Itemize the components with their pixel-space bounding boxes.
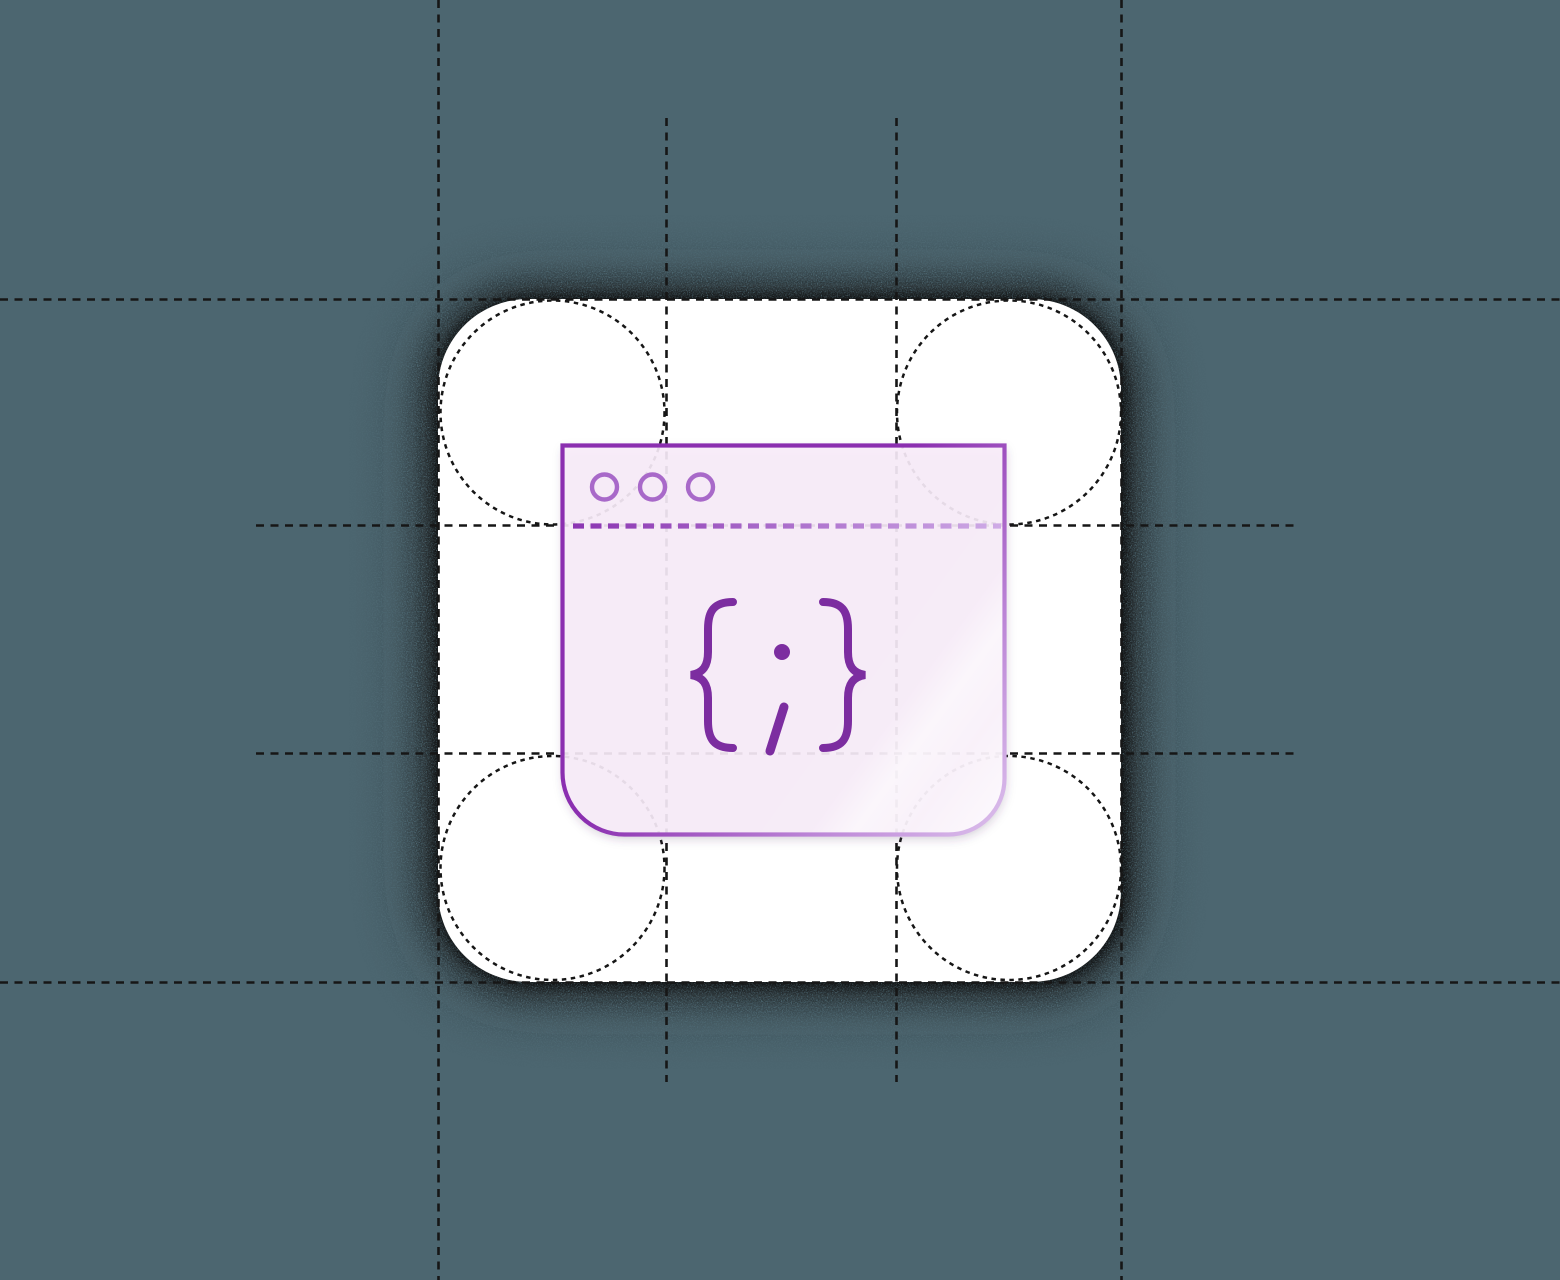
- window-sheen-group: [562, 445, 1005, 835]
- semicolon-dot-icon: [774, 644, 790, 660]
- browser-window-icon: [562, 445, 1005, 835]
- window-sheen-highlight: [562, 445, 1005, 835]
- illustration: [0, 0, 1560, 1280]
- icon-design-canvas: [0, 0, 1560, 1280]
